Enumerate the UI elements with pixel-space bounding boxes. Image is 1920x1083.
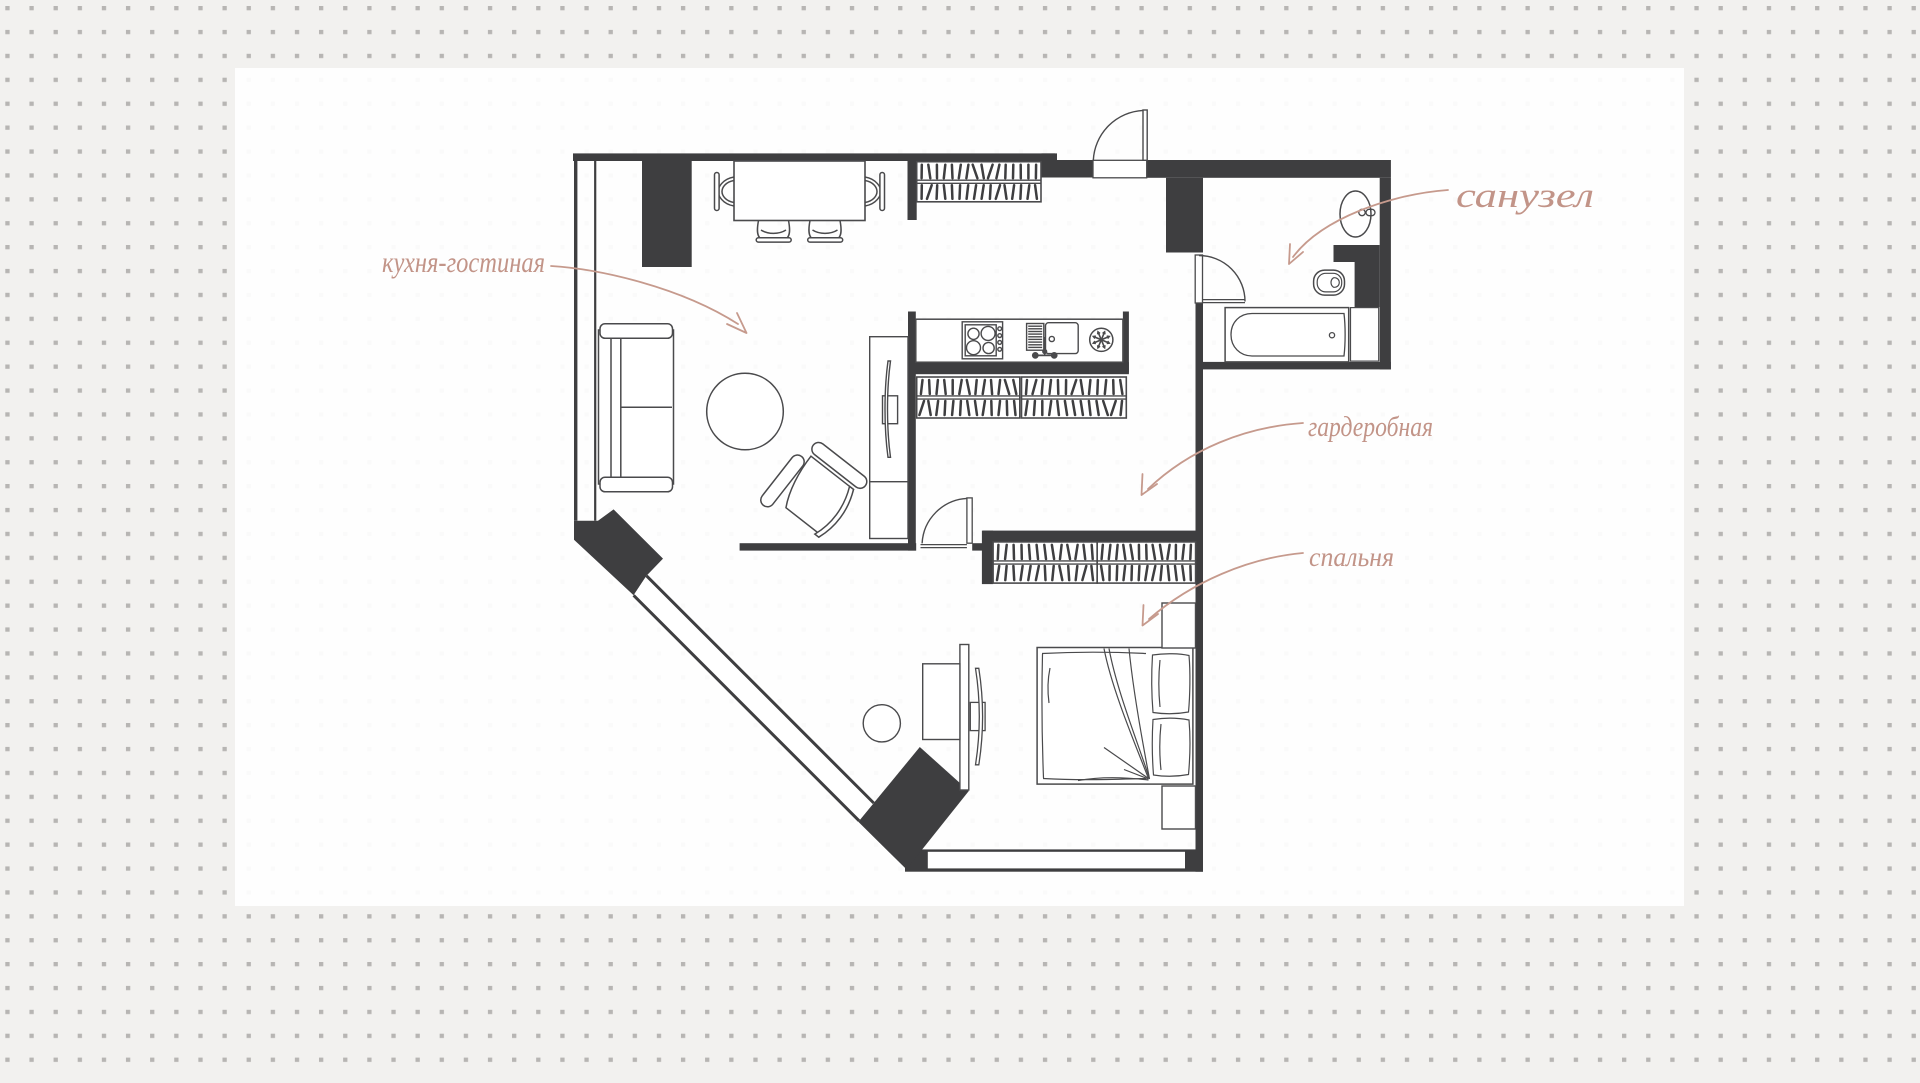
svg-text:гардеробная: гардеробная [1308,412,1433,443]
svg-text:кухня-гостиная: кухня-гостиная [382,246,545,279]
svg-text:санузел: санузел [1456,176,1594,215]
svg-text:спальня: спальня [1309,542,1394,572]
